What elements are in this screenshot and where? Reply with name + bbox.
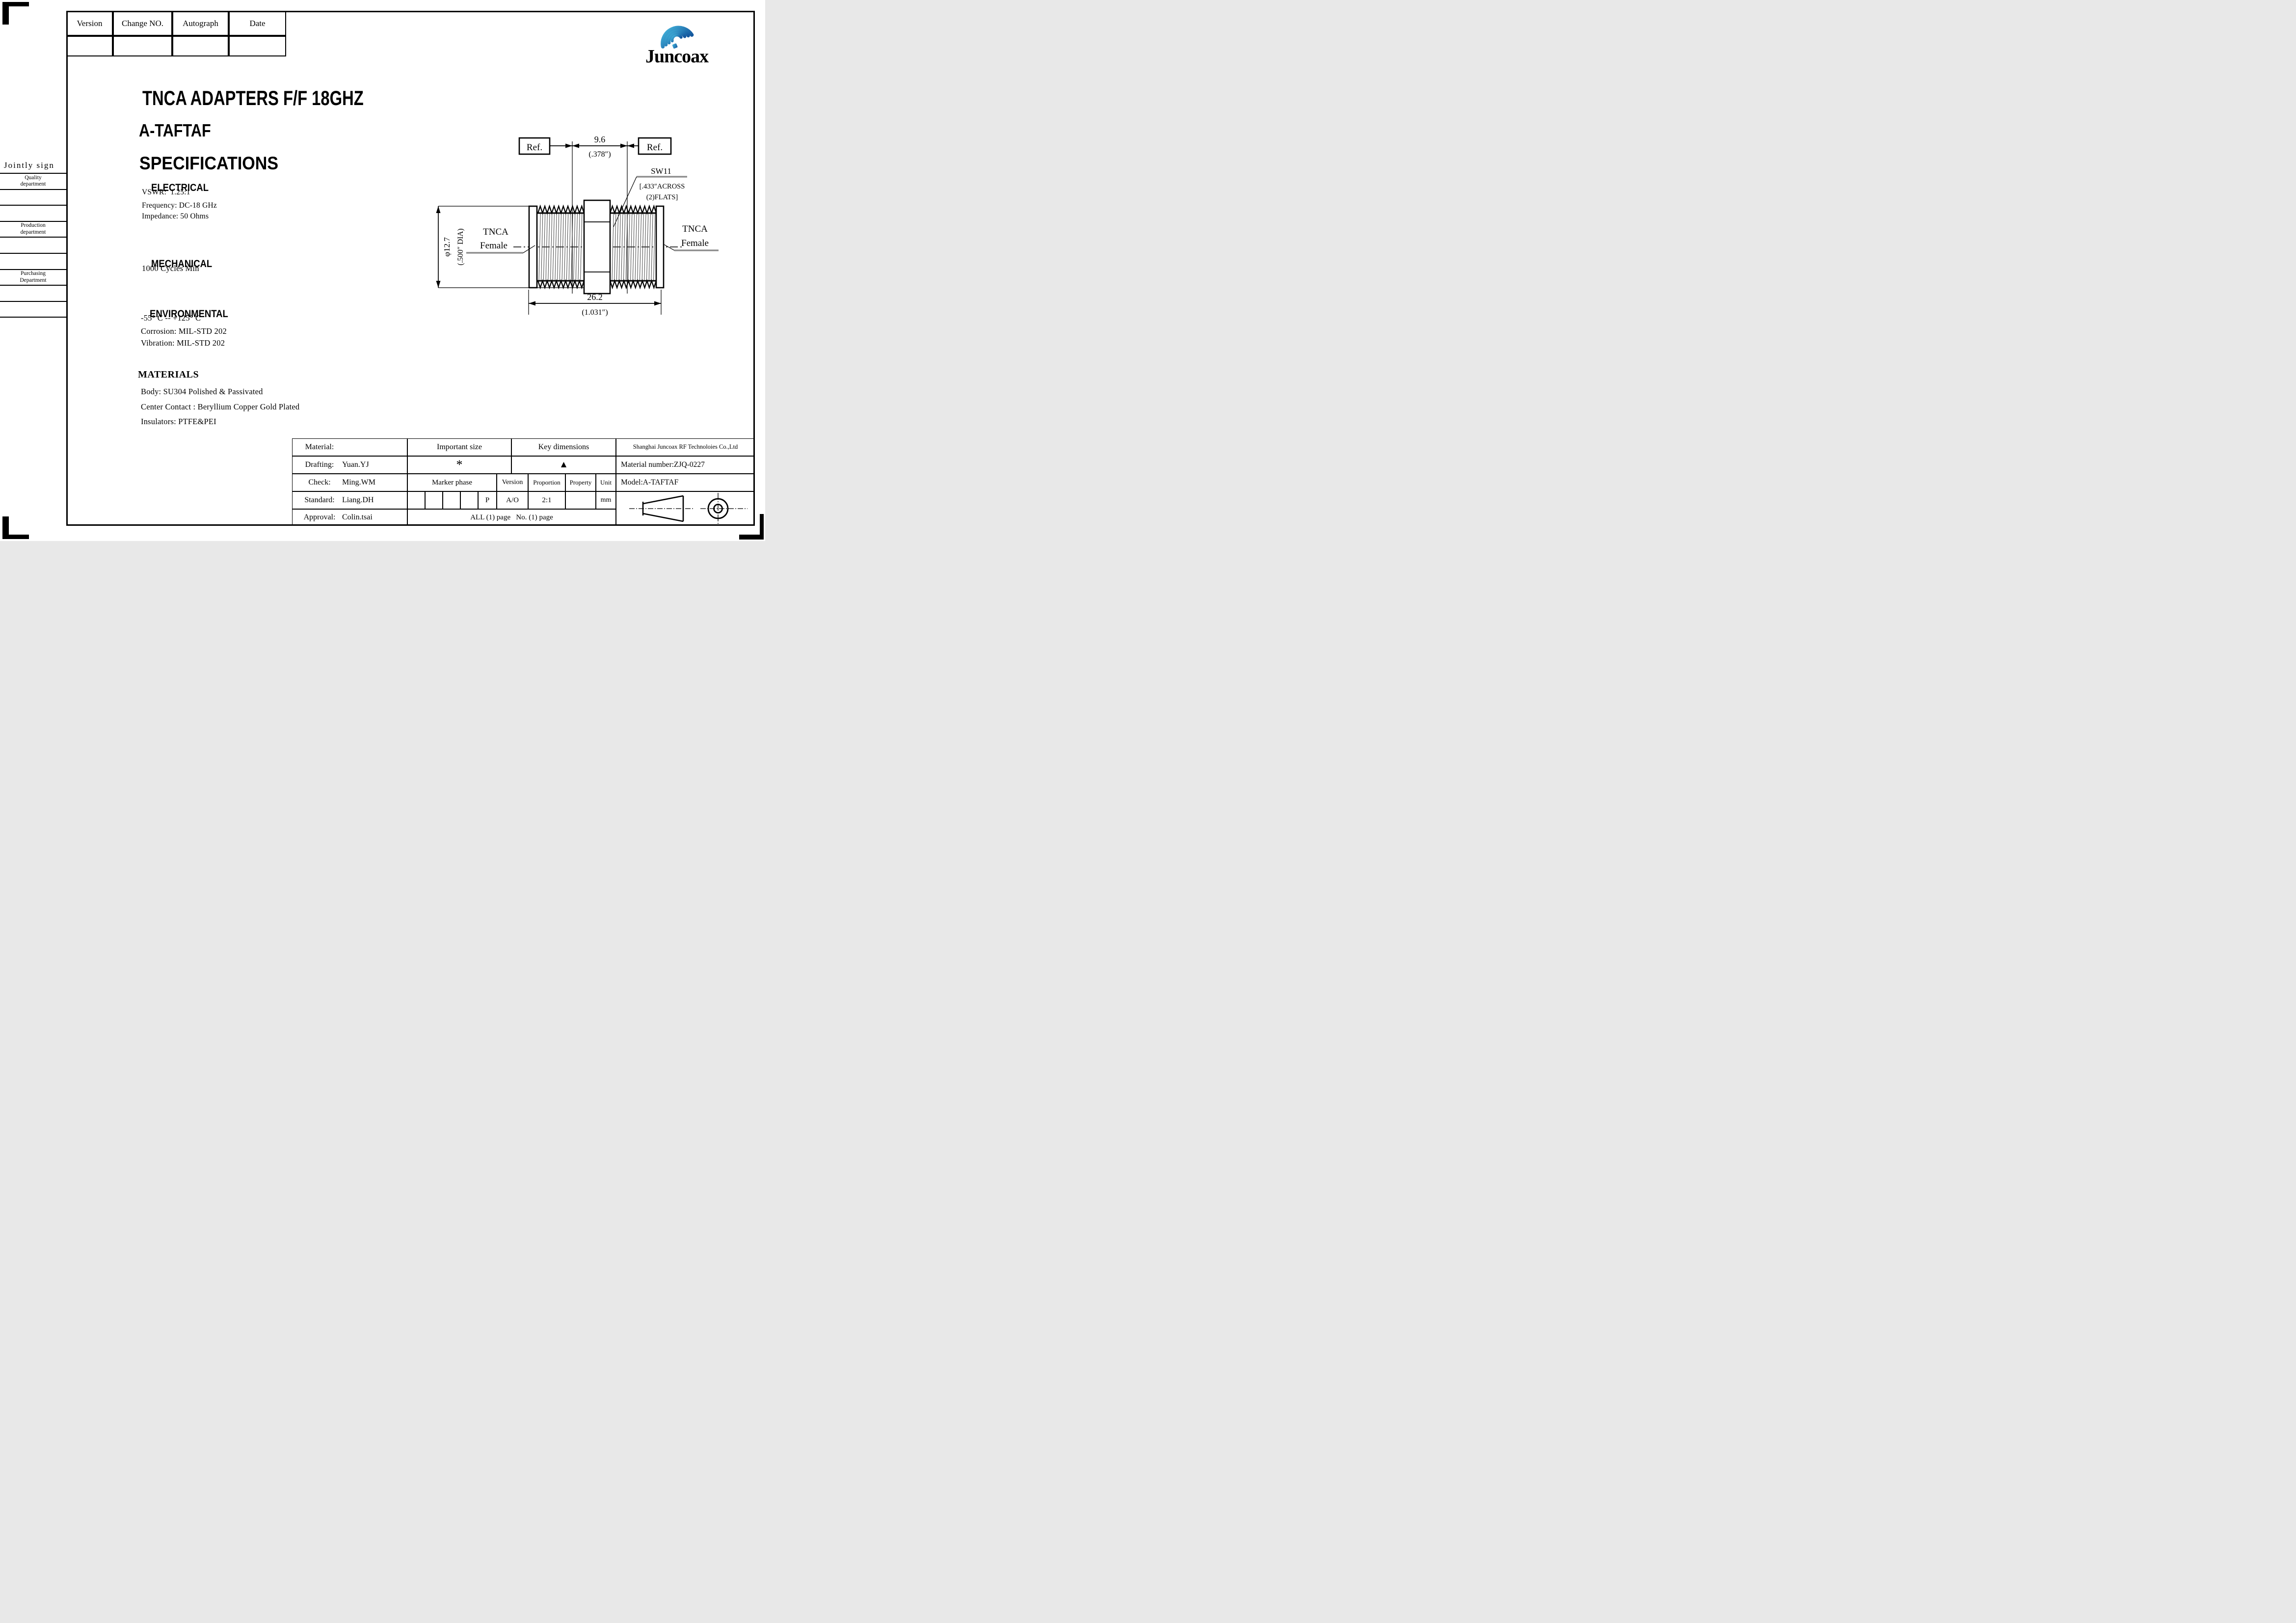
revision-header-label: Change NO. — [122, 19, 163, 28]
company-name: Shanghai Juncoax RF Technoloies Co.,Ltd — [616, 438, 755, 456]
dim-width-inch: (.378″) — [588, 150, 611, 159]
sign-row-empty — [0, 254, 66, 270]
check-row: Check:Ming.WM — [292, 474, 407, 491]
proportion-header: Proportion — [528, 474, 565, 491]
standard-row: Standard:Liang.DH — [292, 491, 407, 509]
property-value — [565, 491, 596, 509]
ref-label-right: Ref. — [647, 142, 663, 153]
sign-row-empty — [0, 302, 66, 318]
revision-header-date: Date — [229, 11, 286, 36]
property-header: Property — [565, 474, 596, 491]
page-count: ALL (1) page No. (1) page — [407, 509, 616, 526]
key-dimensions-mark: ▲ — [511, 456, 616, 474]
hex-label: SW11 — [651, 166, 671, 176]
jointly-sign-header: Jointly sign — [4, 161, 54, 170]
approval-row: Approval:Colin.tsai — [292, 509, 407, 526]
version-value: A/O — [497, 491, 528, 509]
dim-width-mm: 9.6 — [594, 135, 606, 144]
sign-row-empty — [0, 206, 66, 222]
important-size-header: Important size — [407, 438, 511, 456]
marker-phase-cell — [443, 491, 460, 509]
revision-header-label: Date — [249, 19, 265, 28]
marker-phase-cell — [460, 491, 478, 509]
projection-symbol-cell — [616, 491, 755, 526]
logo-wordmark: Juncoax — [645, 46, 709, 67]
sign-row-empty — [0, 190, 66, 206]
spec-insulators: Insulators: PTFE&PEI — [141, 417, 216, 427]
material-row: Material: — [292, 438, 407, 456]
title-block-table: Material: Drafting:Yuan.YJ Check:Ming.WM… — [292, 438, 755, 526]
marker-phase-cell — [407, 491, 425, 509]
right-port-gender: Female — [681, 238, 709, 248]
drawing-sheet: Version Change NO. Autograph Date Juncoa… — [0, 0, 765, 541]
spec-body-material: Body: SU304 Polished & Passivated — [141, 387, 263, 397]
revision-header-change-no: Change NO. — [113, 11, 172, 36]
spec-impedance: Impedance: 50 Ohms — [142, 212, 209, 221]
sign-off-column: Quality department Production department… — [0, 173, 66, 318]
spec-vibration: Vibration: MIL-STD 202 — [141, 338, 225, 348]
drafting-row: Drafting:Yuan.YJ — [292, 456, 407, 474]
revision-header-autograph: Autograph — [172, 11, 229, 36]
revision-header-version: Version — [66, 11, 113, 36]
revision-empty-cell — [66, 36, 113, 56]
revision-empty-cell — [229, 36, 286, 56]
hex-note-1: [.433″ACROSS — [640, 183, 685, 190]
left-port-type: TNCA — [483, 227, 508, 237]
model-number: Model:A-TAFTAF — [616, 474, 755, 491]
sign-row-production-department: Production department — [0, 222, 66, 238]
third-angle-projection-icon — [617, 492, 754, 525]
marker-phase-header: Marker phase — [407, 474, 497, 491]
dim-length-mm: 26.2 — [587, 292, 603, 302]
sign-row-empty — [0, 238, 66, 254]
corner-mark-bottom-left-horizontal — [2, 535, 29, 539]
proportion-value: 2:1 — [528, 491, 565, 509]
adapter-technical-drawing: Ref. Ref. 9.6 (.378″) SW11 [.433″ACROSS … — [427, 128, 745, 325]
spec-vswr: VSWR: 1.25:1 — [142, 188, 190, 197]
marker-phase-p-cell: P — [478, 491, 497, 509]
corner-mark-top-left-horizontal — [2, 2, 29, 6]
revision-header-label: Autograph — [183, 19, 218, 28]
revision-table: Version Change NO. Autograph Date — [66, 11, 286, 56]
spec-temperature: -55° C -- +125° C — [141, 313, 201, 323]
key-dimensions-header: Key dimensions — [511, 438, 616, 456]
material-number: Material number:ZJQ-0227 — [616, 456, 755, 474]
unit-value: mm — [596, 491, 616, 509]
right-port-type: TNCA — [682, 224, 708, 234]
marker-phase-cell — [425, 491, 443, 509]
dim-length-inch: (1.031″) — [582, 308, 608, 317]
hex-note-2: (2)FLATS] — [646, 193, 678, 201]
unit-header: Unit — [596, 474, 616, 491]
revision-header-label: Version — [77, 19, 103, 28]
materials-heading: MATERIALS — [138, 369, 199, 380]
sign-row-empty — [0, 286, 66, 302]
version-header: Version — [497, 474, 528, 491]
dia-mm: φ12.7 — [442, 237, 452, 257]
dia-inch: (.500″ DIA) — [456, 228, 465, 265]
revision-empty-cell — [172, 36, 229, 56]
spec-center-contact: Center Contact : Beryllium Copper Gold P… — [141, 402, 299, 412]
left-port-gender: Female — [480, 241, 507, 251]
spec-cycles: 1000 Cycles Min — [142, 264, 199, 273]
ref-label-left: Ref. — [527, 142, 542, 153]
corner-mark-bottom-right-horizontal — [739, 535, 764, 540]
sign-row-quality-department: Quality department — [0, 174, 66, 190]
spec-corrosion: Corrosion: MIL-STD 202 — [141, 326, 227, 336]
specifications-title: SPECIFICATIONS — [119, 133, 291, 174]
important-size-mark: * — [407, 456, 511, 474]
revision-empty-cell — [113, 36, 172, 56]
spec-frequency: Frequency: DC-18 GHz — [142, 201, 217, 210]
company-logo: Juncoax — [644, 13, 745, 67]
sign-row-purchasing-department: Purchasing Department — [0, 270, 66, 286]
